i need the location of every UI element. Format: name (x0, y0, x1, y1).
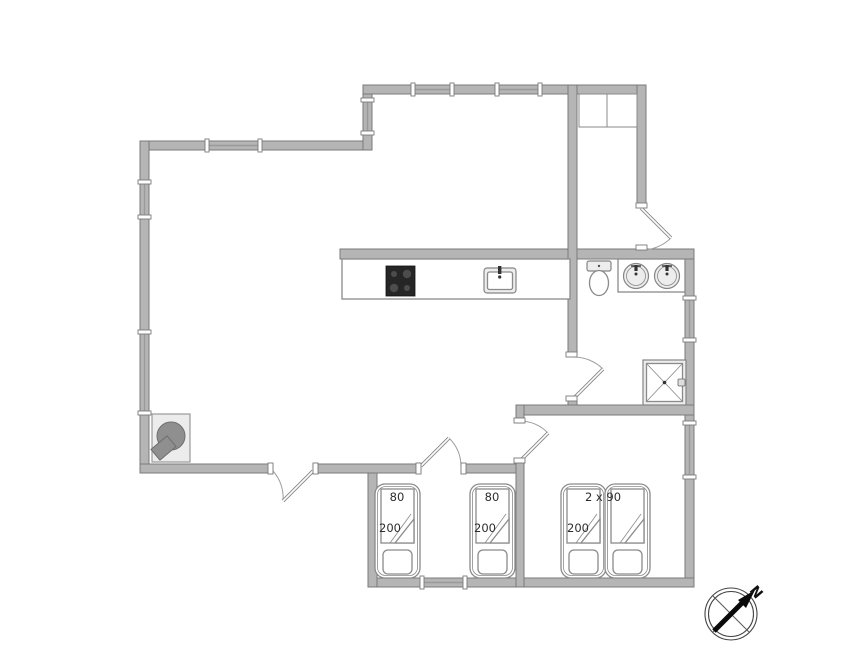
floor-plan-page: 80 200 80 200 2 x 90 200 N (0, 0, 852, 667)
wall (637, 85, 646, 207)
washbasin-icon (624, 264, 649, 289)
double-bedroom-door (514, 418, 548, 463)
wall (313, 464, 421, 473)
wall (368, 578, 694, 587)
bed1-width-label: 80 (390, 490, 405, 504)
washbasin-counter (618, 259, 685, 292)
entrance-door (636, 203, 671, 250)
wall (516, 405, 694, 415)
compass-icon: N (705, 583, 766, 640)
wall (140, 464, 273, 473)
bathroom-door (566, 352, 603, 401)
wall (463, 464, 523, 473)
doors (268, 203, 671, 501)
double-bed-size-label: 2 x 90 (585, 490, 621, 504)
terrace-door (268, 463, 318, 501)
shower-icon (643, 360, 686, 405)
wall (340, 249, 694, 259)
wall (568, 85, 577, 355)
bed2-width-label: 80 (485, 490, 500, 504)
floor-plan: 80 200 80 200 2 x 90 200 N (0, 0, 852, 667)
toilet-icon (587, 261, 611, 296)
bed1-length-label: 200 (379, 521, 401, 535)
bedroom-door (416, 438, 466, 474)
wood-stove-icon (151, 414, 190, 462)
bed2-length-label: 200 (474, 521, 496, 535)
kitchen-counter (342, 259, 570, 299)
double-bed-length-label: 200 (567, 521, 589, 535)
sink-icon (484, 266, 516, 293)
wall (516, 461, 524, 587)
stove-icon (386, 266, 415, 296)
washbasin-icon (655, 264, 680, 289)
closet (579, 94, 637, 127)
